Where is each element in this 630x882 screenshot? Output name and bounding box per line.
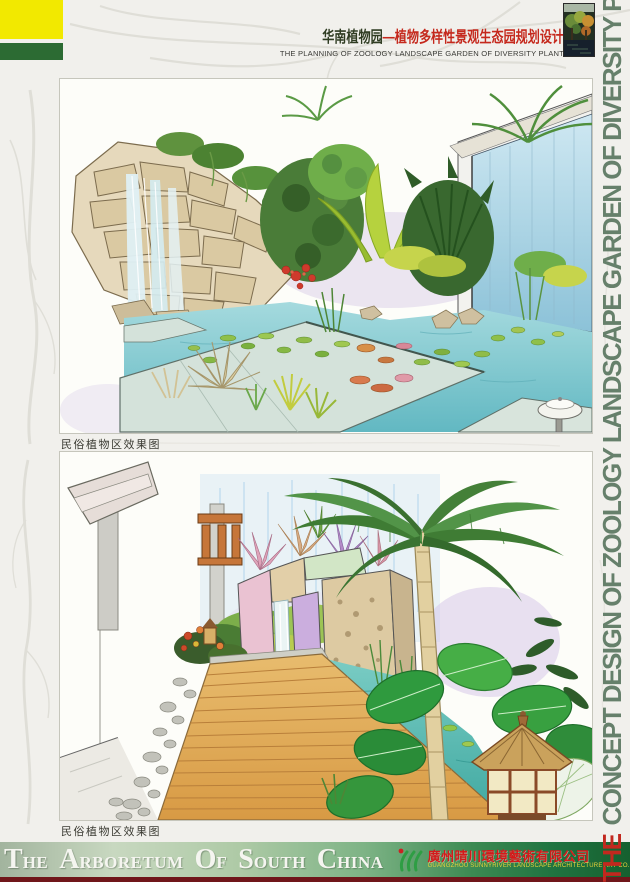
footer-word-cap: A: [59, 844, 79, 875]
footer-word-cap: T: [4, 844, 23, 875]
footer-word-rest: HE: [23, 853, 49, 872]
footer-word: OF: [195, 844, 228, 876]
footer-word-cap: O: [195, 844, 217, 875]
footer-word-rest: HINA: [337, 853, 383, 872]
figure-2-caption: 民俗植物区效果图: [61, 823, 161, 839]
footer-word: CHINA: [317, 844, 384, 876]
poster: 华南植物园—植物多样性景观生态园规划设计 THE PLANNING OF ZOO…: [0, 0, 630, 882]
title-main: —植物多样性景观生态园规划设计: [383, 29, 564, 46]
sunnyriver-logo-icon: [397, 847, 423, 873]
footer-banner: THE ARBORETUM OF SOUTH CHINA 廣州晴川環境藝術有限公…: [0, 842, 630, 877]
footer-word-cap: C: [317, 844, 337, 875]
footer-word: SOUTH: [238, 844, 306, 876]
wood-bracket: [198, 514, 242, 565]
corner-mark-green: [0, 43, 63, 60]
side-title-the: THE: [597, 835, 628, 882]
figure-1-illustration: [60, 79, 592, 433]
page-subtitle: THE PLANNING OF ZOOLOGY LANDSCAPE GARDEN…: [234, 49, 564, 58]
footer-word: THE: [4, 844, 48, 876]
side-title-vertical: THECONCEPT DESIGN OF ZOOLOGY LANDSCAPE G…: [594, 0, 630, 882]
figure-1-paper: [59, 78, 593, 434]
footer-red-strip: [0, 877, 630, 882]
figure-1-caption: 民俗植物区效果图: [61, 436, 161, 452]
figure-2-illustration: [60, 452, 592, 820]
photo-thumbnail: [564, 4, 594, 56]
header: 华南植物园—植物多样性景观生态园规划设计 THE PLANNING OF ZOO…: [234, 29, 564, 58]
footer-word-cap: S: [238, 844, 254, 875]
corner-mark-yellow: [0, 0, 63, 39]
footer-word-rest: F: [216, 853, 227, 872]
side-title-rest: CONCEPT DESIGN OF ZOOLOGY LANDSCAPE GARD…: [597, 0, 628, 826]
footer-word-rest: RBORETUM: [79, 853, 183, 872]
footer-word-rest: OUTH: [254, 853, 306, 872]
footer-title: THE ARBORETUM OF SOUTH CHINA: [4, 844, 395, 876]
title-prefix: 华南植物园: [322, 29, 382, 46]
page-title: 华南植物园—植物多样性景观生态园规划设计: [322, 29, 564, 48]
figure-2-paper: [59, 451, 593, 821]
footer-word: ARBORETUM: [59, 844, 183, 876]
